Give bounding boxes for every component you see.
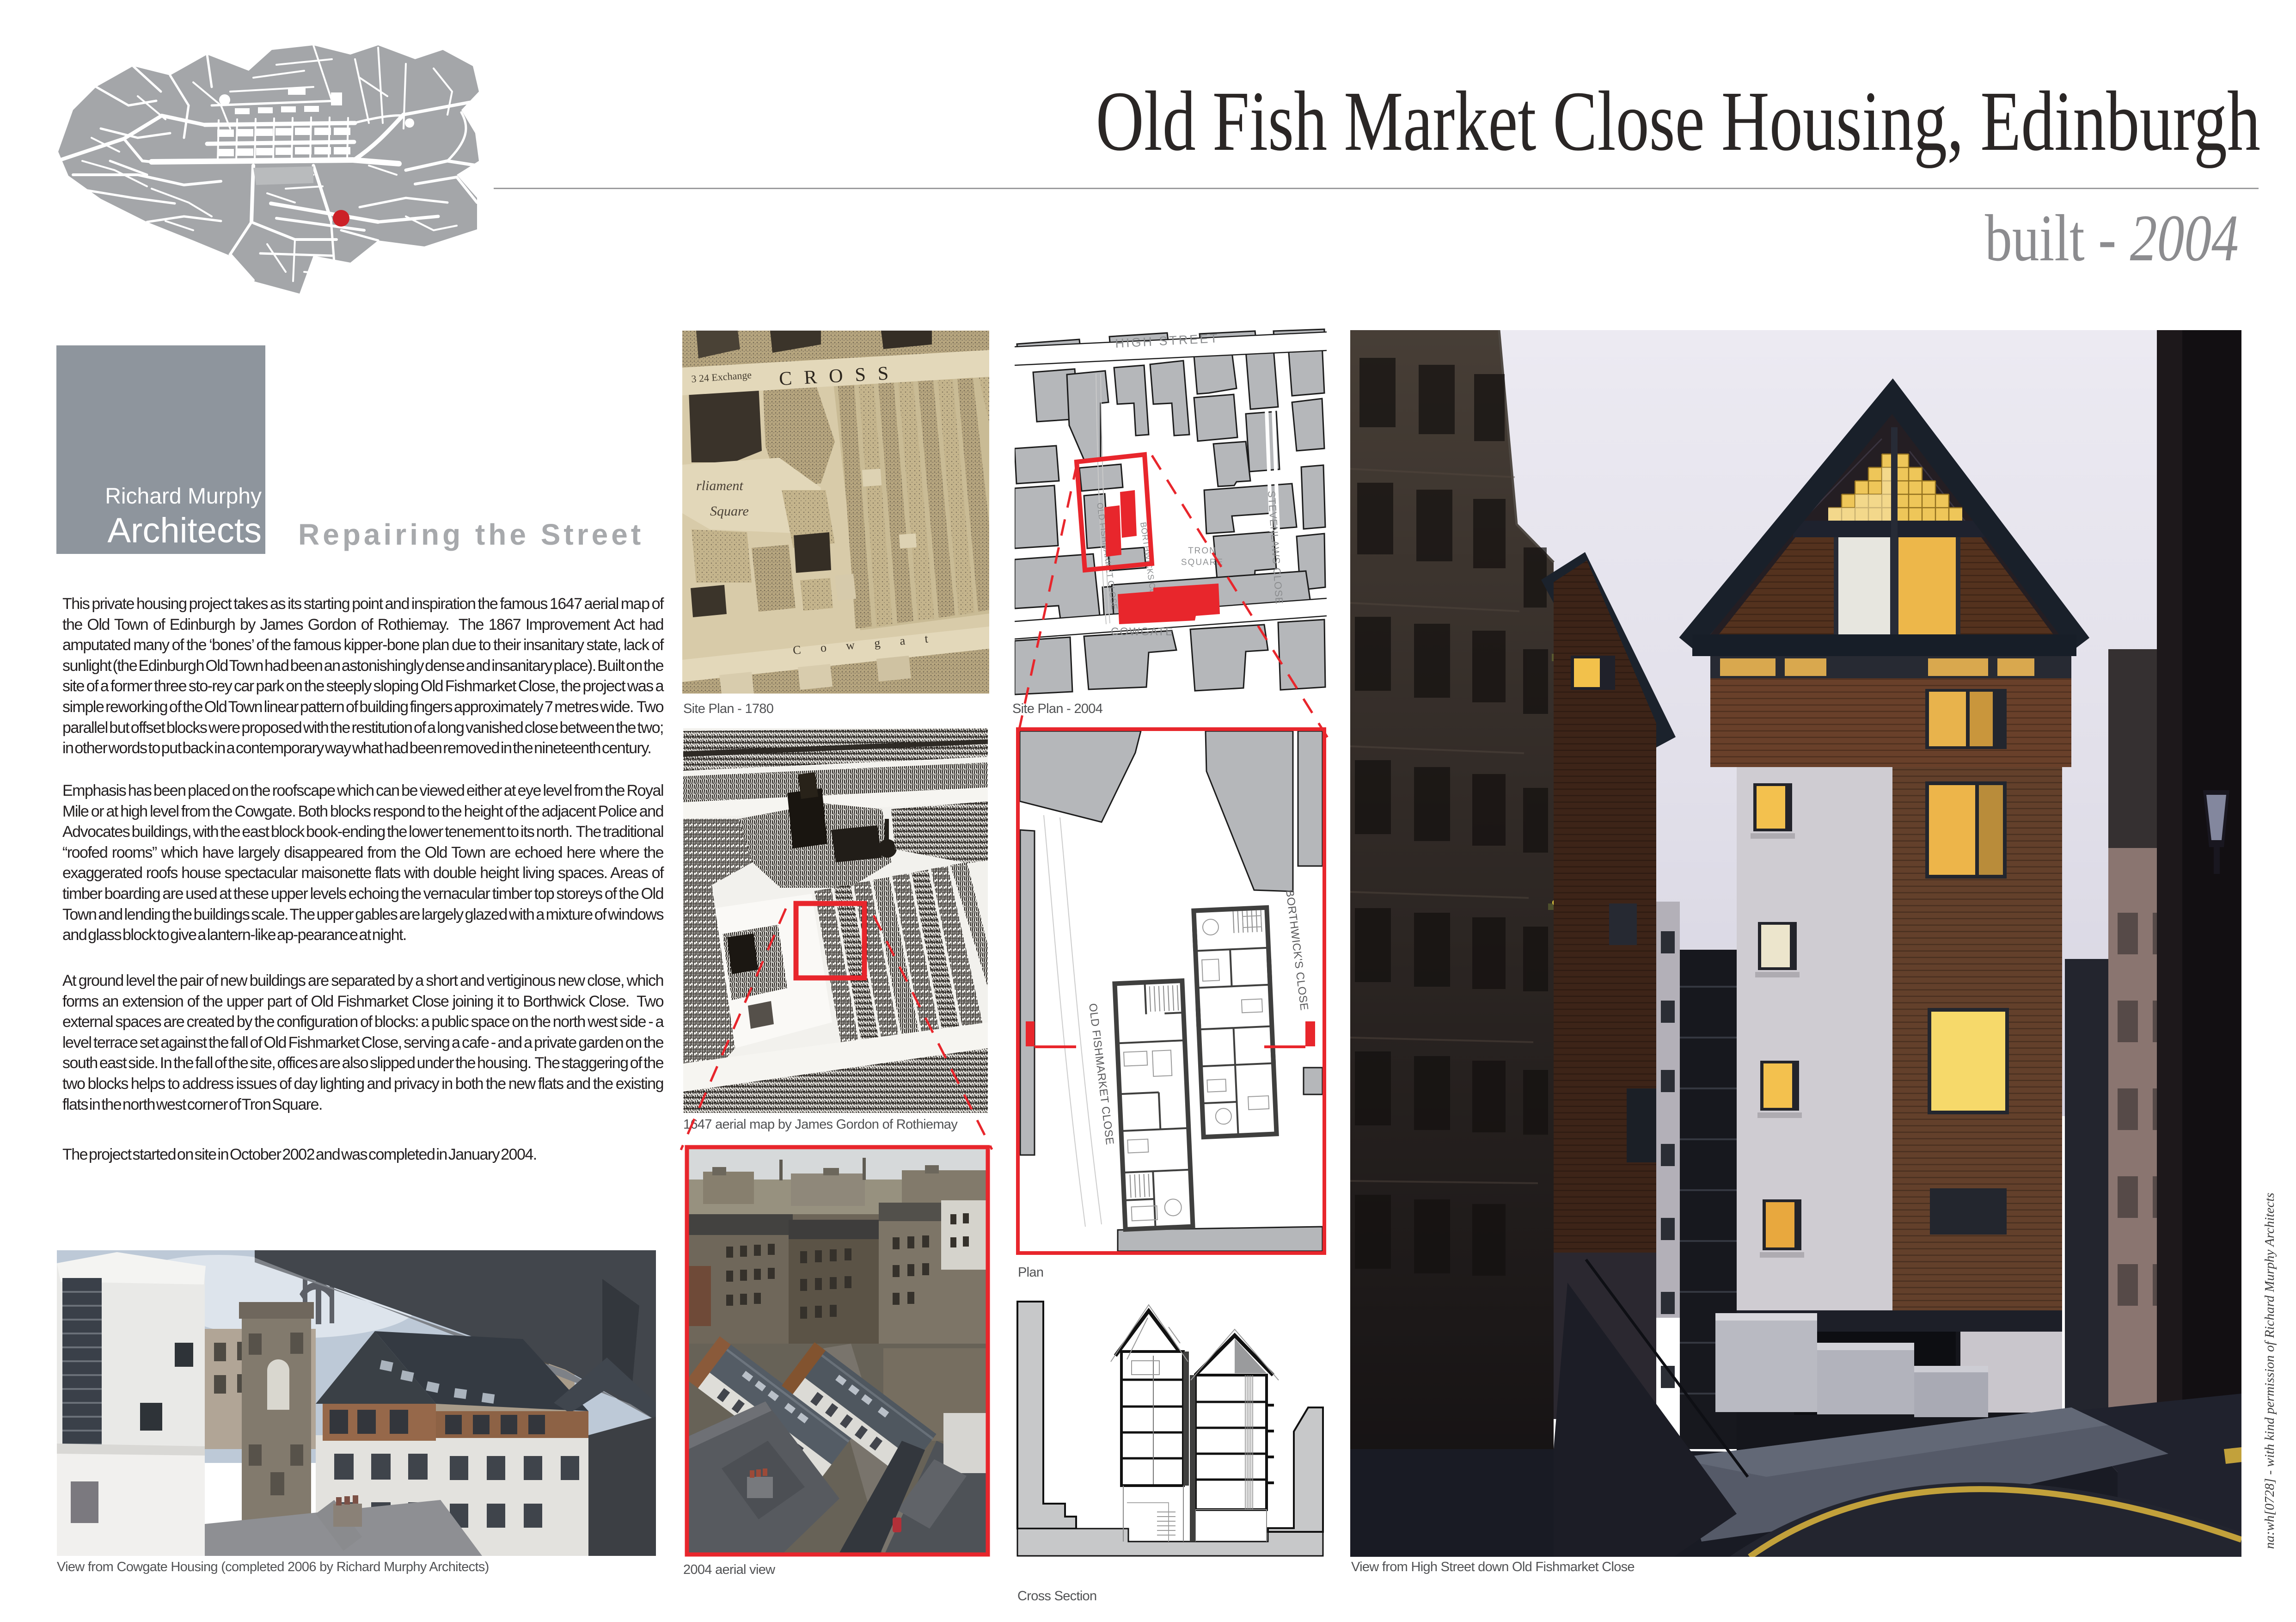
svg-text:TRON: TRON: [1188, 546, 1217, 556]
svg-text:Square: Square: [710, 504, 749, 519]
svg-text:rliament: rliament: [696, 478, 743, 493]
svg-text:COWGATE: COWGATE: [1111, 626, 1174, 638]
svg-text:SQUARE: SQUARE: [1181, 558, 1224, 567]
